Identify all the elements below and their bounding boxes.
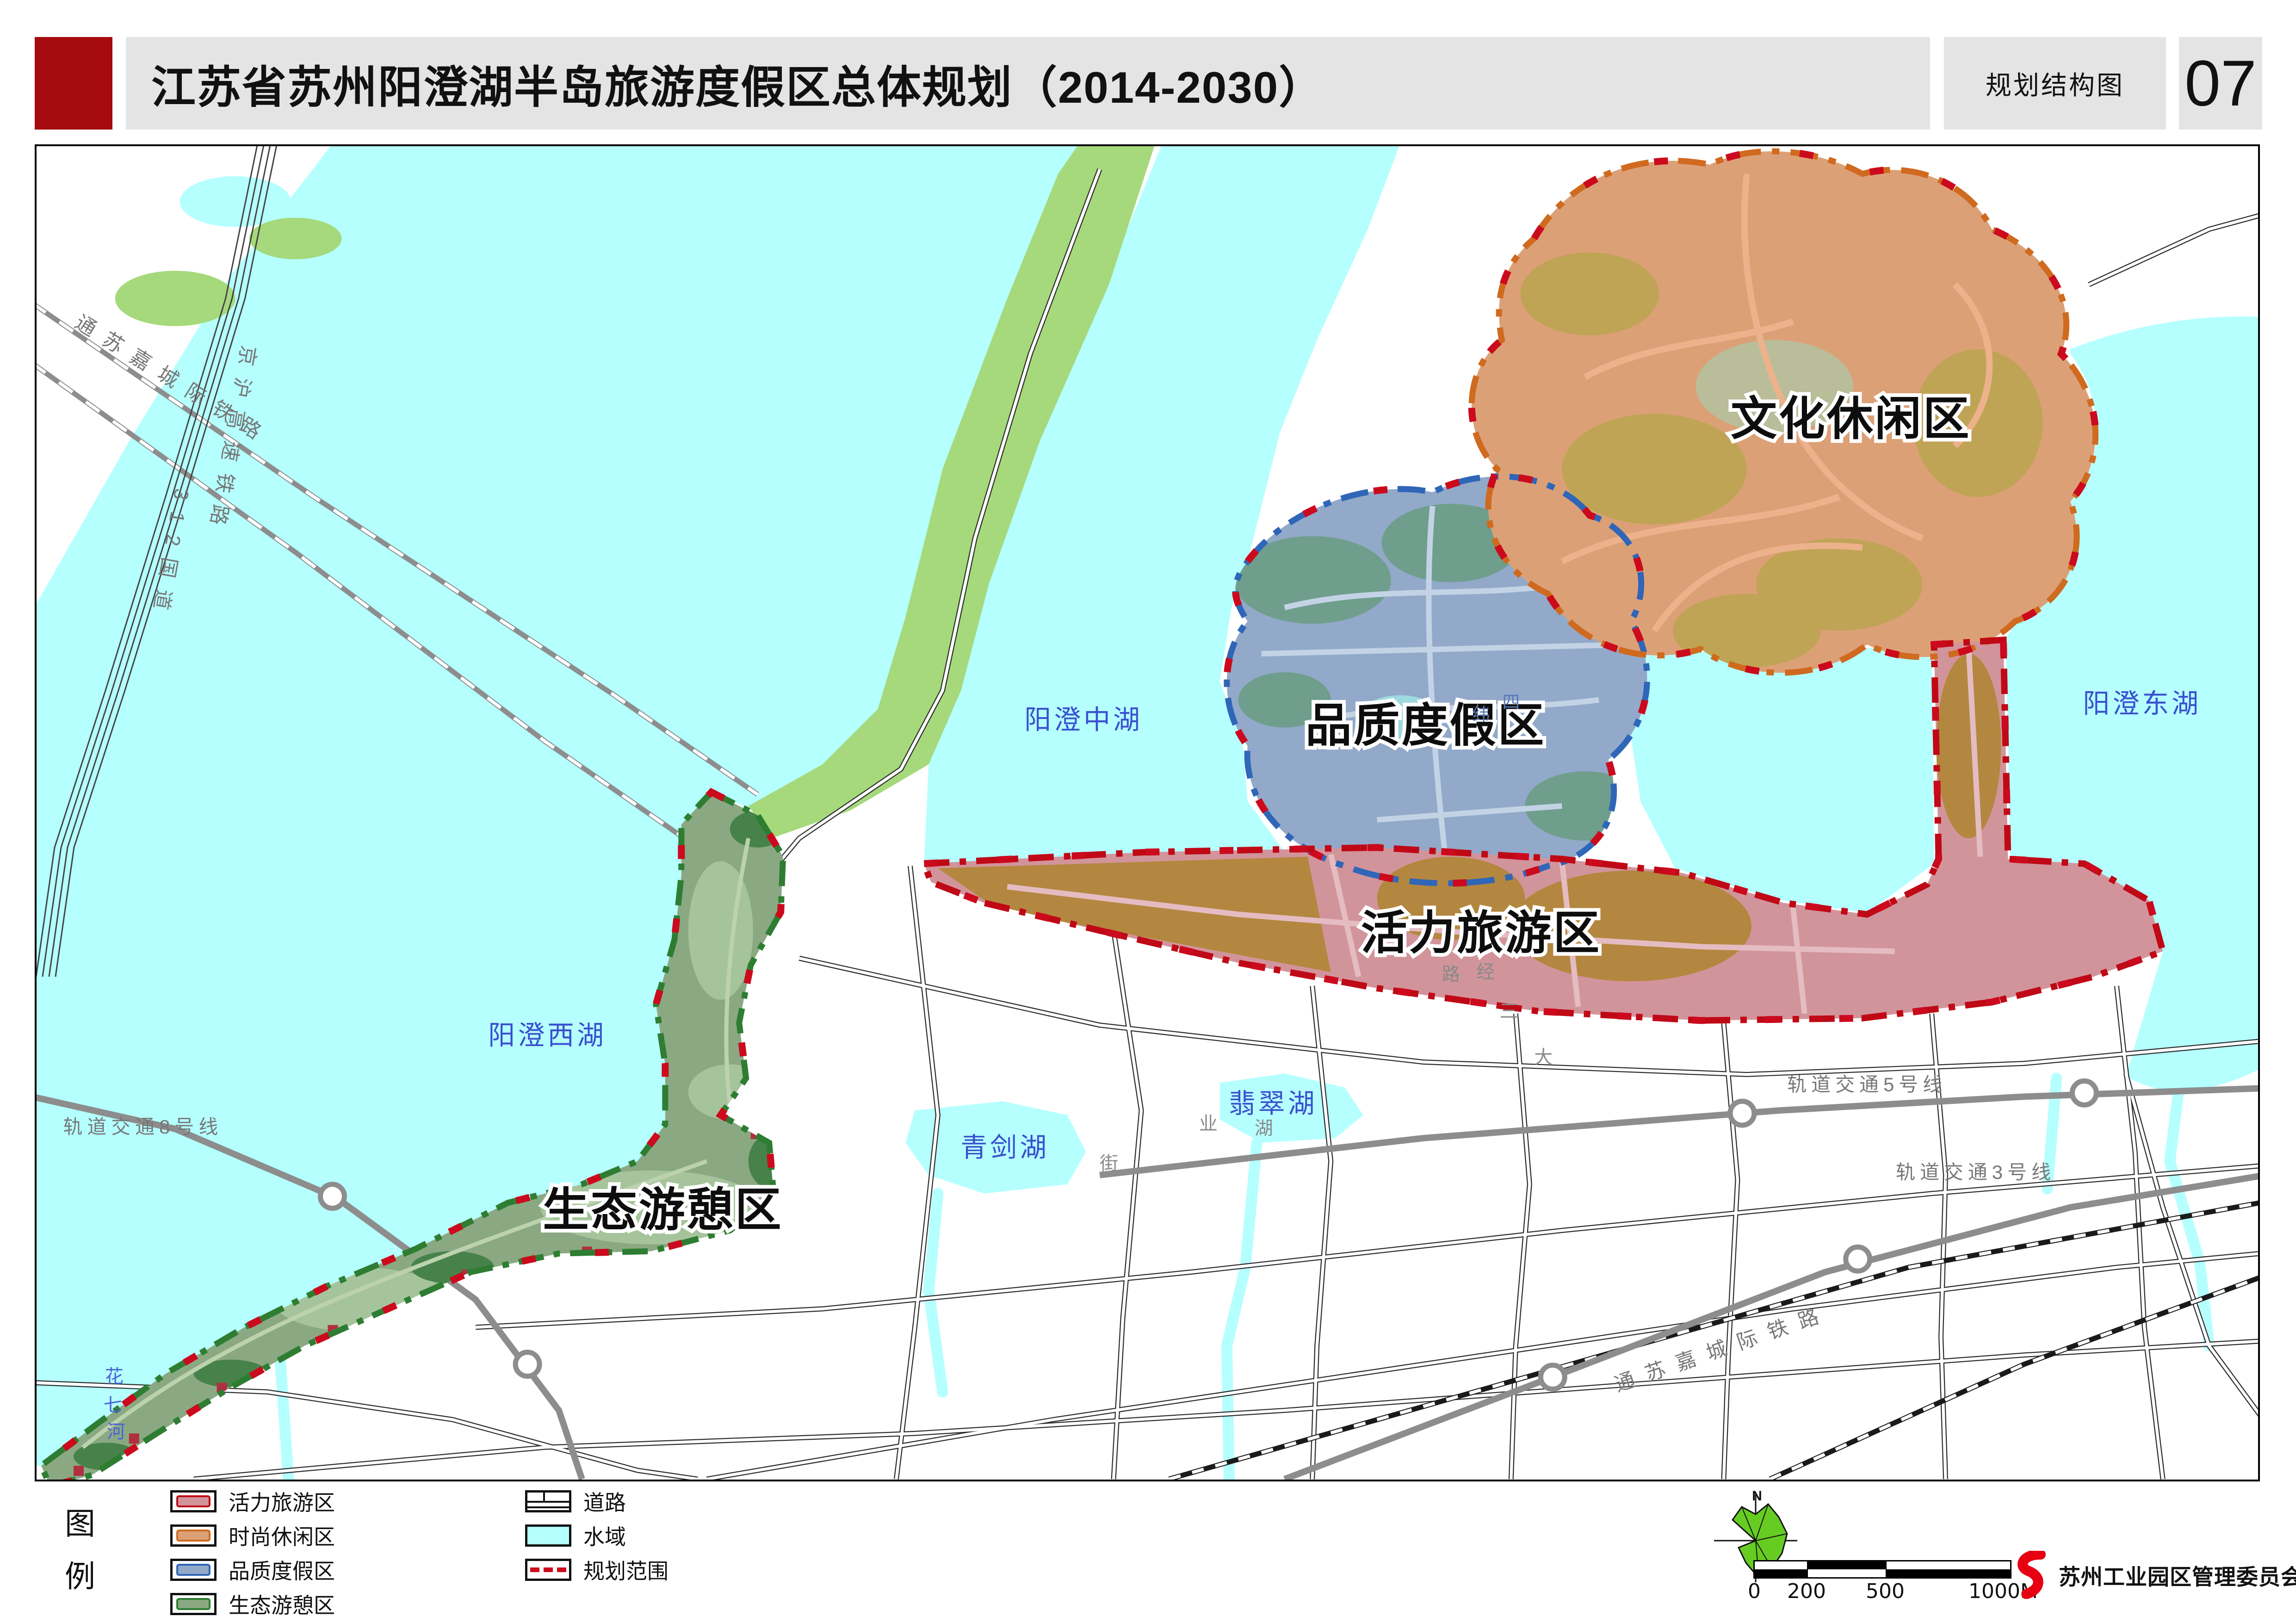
legend-swatch-eco — [170, 1593, 217, 1615]
lake-label-qingjian: 青剑湖 — [960, 1133, 1049, 1163]
organization-name: 苏州工业园区管理委员会 — [2059, 1559, 2296, 1591]
legend-item-quality: 品质度假区 — [170, 1553, 335, 1587]
sip-logo-icon — [2011, 1551, 2054, 1599]
legend-item-boundary: 规划范围 — [525, 1553, 668, 1587]
road-fragment: 纬 — [1472, 706, 1490, 725]
legend-label: 规划范围 — [583, 1555, 668, 1585]
lake-yangcheng-west-central — [37, 146, 1081, 1466]
scale-bar — [1753, 1560, 2011, 1579]
road-fragment: 街 — [1100, 1153, 1118, 1174]
road-symbol — [527, 1493, 569, 1510]
road-fragment: 路 — [1442, 964, 1460, 985]
legend-label: 水域 — [583, 1520, 626, 1551]
road-fragment: 湖 — [1255, 1118, 1273, 1139]
scale-tick: 200 — [1787, 1580, 1826, 1603]
lake-label-yangcheng-west: 阳澄西湖 — [488, 1021, 606, 1051]
legend-title-char: 例 — [64, 1552, 96, 1596]
lake-label-yangcheng-east: 阳澄东湖 — [2083, 689, 2201, 719]
pond — [180, 176, 291, 227]
river-char: 花 — [105, 1367, 124, 1387]
legend-item-water: 水域 — [525, 1518, 668, 1553]
road-fragment: 业 — [1199, 1114, 1218, 1134]
page-title: 江苏省苏州阳澄湖半岛旅游度假区总体规划（2014-2030） — [126, 51, 1324, 116]
road-fragment: 三 — [1499, 1001, 1518, 1022]
road-fragment: 四 — [1502, 693, 1520, 712]
legend-swatch-vitality — [170, 1490, 217, 1512]
map-type-label: 规划结构图 — [1944, 37, 2166, 130]
legend-label: 生态游憩区 — [229, 1589, 335, 1619]
pond — [563, 331, 702, 396]
map-canvas[interactable]: 文化休闲区 品质度假区 活力旅游区 生态游憩区 阳澄中湖 阳澄西湖 阳澄东湖 翡… — [35, 144, 2260, 1481]
legend-label: 时尚休闲区 — [229, 1520, 335, 1551]
road-fragment: 大 — [1534, 1047, 1553, 1068]
plan-sheet: 江苏省苏州阳澄湖半岛旅游度假区总体规划（2014-2030） 规划结构图 07 — [0, 0, 2296, 1623]
river-char: 河 — [107, 1422, 125, 1442]
legend-feature-list: 道路 水域 规划范围 — [525, 1484, 668, 1587]
legend-swatch-leisure — [170, 1524, 217, 1547]
planning-map-svg: 文化休闲区 品质度假区 活力旅游区 生态游憩区 阳澄中湖 阳澄西湖 阳澄东湖 翡… — [37, 146, 2258, 1480]
legend-zone-list: 活力旅游区 时尚休闲区 品质度假区 生态游憩区 — [170, 1484, 335, 1621]
legend-item-road: 道路 — [525, 1484, 668, 1518]
railway-label-tongsujia-se: 通苏嘉城际铁路 — [1611, 1301, 1833, 1396]
header-bar: 江苏省苏州阳澄湖半岛旅游度假区总体规划（2014-2030） — [126, 37, 1930, 130]
metro-3-label: 轨道交通3号线 — [1896, 1161, 2055, 1183]
legend-swatch-road — [525, 1490, 571, 1512]
legend-title-char: 图 — [64, 1499, 96, 1543]
road-fragment: 经 — [1476, 962, 1495, 982]
legend-swatch-water — [525, 1524, 571, 1547]
lake-label-yangcheng-central: 阳澄中湖 — [1024, 706, 1143, 735]
legend-item-eco: 生态游憩区 — [170, 1587, 335, 1621]
legend-label: 品质度假区 — [229, 1555, 335, 1585]
legend-label: 道路 — [583, 1486, 626, 1517]
legend-label: 活力旅游区 — [229, 1486, 335, 1517]
zone-label-eco-recreation: 生态游憩区 — [543, 1185, 783, 1236]
scale-tick: 0 — [1748, 1580, 1761, 1603]
zone-label-vitality-tourism: 活力旅游区 — [1361, 908, 1602, 959]
metro-8-label: 轨道交通8号线 — [63, 1116, 223, 1138]
header-accent-block — [35, 37, 112, 130]
north-label: N — [1752, 1488, 1762, 1504]
river-canal — [928, 1194, 942, 1392]
legend-swatch-boundary — [525, 1559, 571, 1581]
org-logo-block: 苏州工业园区管理委员会 — [2011, 1551, 2296, 1599]
river-char: 七 — [104, 1395, 122, 1415]
river-canal — [1227, 1143, 1257, 1479]
lake-label-feicui: 翡翠湖 — [1229, 1089, 1318, 1119]
legend-title: 图 例 — [64, 1499, 96, 1596]
legend-swatch-quality — [170, 1559, 217, 1581]
pond — [323, 225, 480, 299]
scale-tick: 500 — [1866, 1580, 1905, 1603]
legend-item-leisure: 时尚休闲区 — [170, 1518, 335, 1553]
legend-item-vitality: 活力旅游区 — [170, 1484, 335, 1518]
zone-label-culture-leisure: 文化休闲区 — [1731, 393, 1971, 445]
metro-5-label: 轨道交通5号线 — [1787, 1073, 1947, 1095]
page-number: 07 — [2179, 37, 2262, 130]
